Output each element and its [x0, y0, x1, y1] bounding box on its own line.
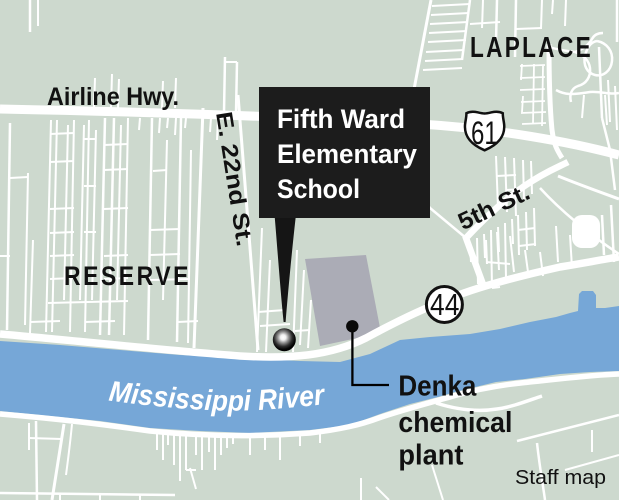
svg-text:44: 44	[430, 288, 459, 322]
svg-text:Staff map: Staff map	[515, 466, 606, 489]
svg-text:chemical: chemical	[398, 407, 512, 439]
svg-text:School: School	[277, 174, 360, 204]
svg-text:61: 61	[471, 115, 498, 151]
svg-text:Elementary: Elementary	[277, 139, 417, 169]
svg-text:Denka: Denka	[398, 371, 477, 403]
svg-text:RESERVE: RESERVE	[64, 261, 191, 291]
svg-text:LAPLACE: LAPLACE	[470, 32, 593, 64]
svg-text:Fifth Ward: Fifth Ward	[277, 104, 405, 134]
svg-text:Airline Hwy.: Airline Hwy.	[47, 83, 179, 111]
svg-text:plant: plant	[398, 440, 463, 472]
